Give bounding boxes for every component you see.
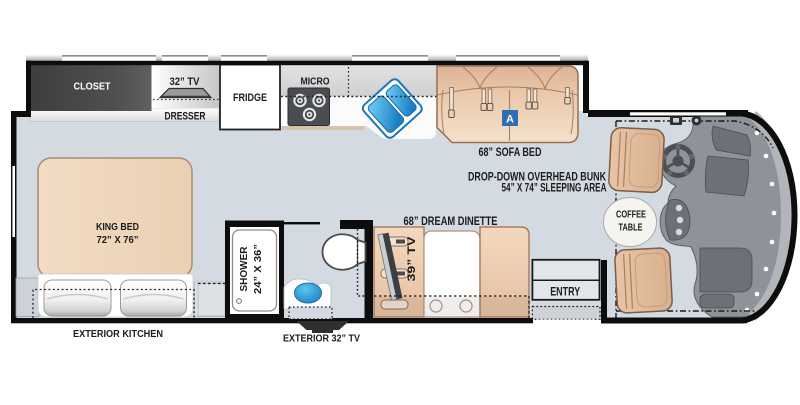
svg-text:FRIDGE: FRIDGE bbox=[233, 92, 267, 104]
svg-text:72” X 76”: 72” X 76” bbox=[97, 234, 139, 246]
svg-text:DRESSER: DRESSER bbox=[165, 111, 206, 123]
svg-text:SHOWER: SHOWER bbox=[239, 246, 250, 292]
svg-text:EXTERIOR KITCHEN: EXTERIOR KITCHEN bbox=[73, 328, 163, 340]
svg-text:24” X 36”: 24” X 36” bbox=[253, 244, 264, 294]
svg-text:A: A bbox=[506, 114, 514, 126]
svg-text:68” SOFA BED: 68” SOFA BED bbox=[479, 145, 542, 159]
svg-text:EXTERIOR 32” TV: EXTERIOR 32” TV bbox=[283, 333, 360, 345]
svg-text:68” DREAM DINETTE: 68” DREAM DINETTE bbox=[404, 214, 498, 228]
svg-text:CLOSET: CLOSET bbox=[74, 81, 112, 93]
svg-text:MICRO: MICRO bbox=[301, 76, 330, 88]
svg-text:ENTRY: ENTRY bbox=[550, 287, 580, 299]
svg-text:TABLE: TABLE bbox=[619, 222, 643, 234]
svg-text:KING BED: KING BED bbox=[96, 221, 139, 233]
svg-text:COFFEE: COFFEE bbox=[616, 209, 646, 221]
svg-text:54” X 74” SLEEPING AREA: 54” X 74” SLEEPING AREA bbox=[502, 181, 607, 195]
svg-text:32” TV: 32” TV bbox=[170, 76, 201, 88]
svg-text:39” TV: 39” TV bbox=[406, 236, 418, 282]
